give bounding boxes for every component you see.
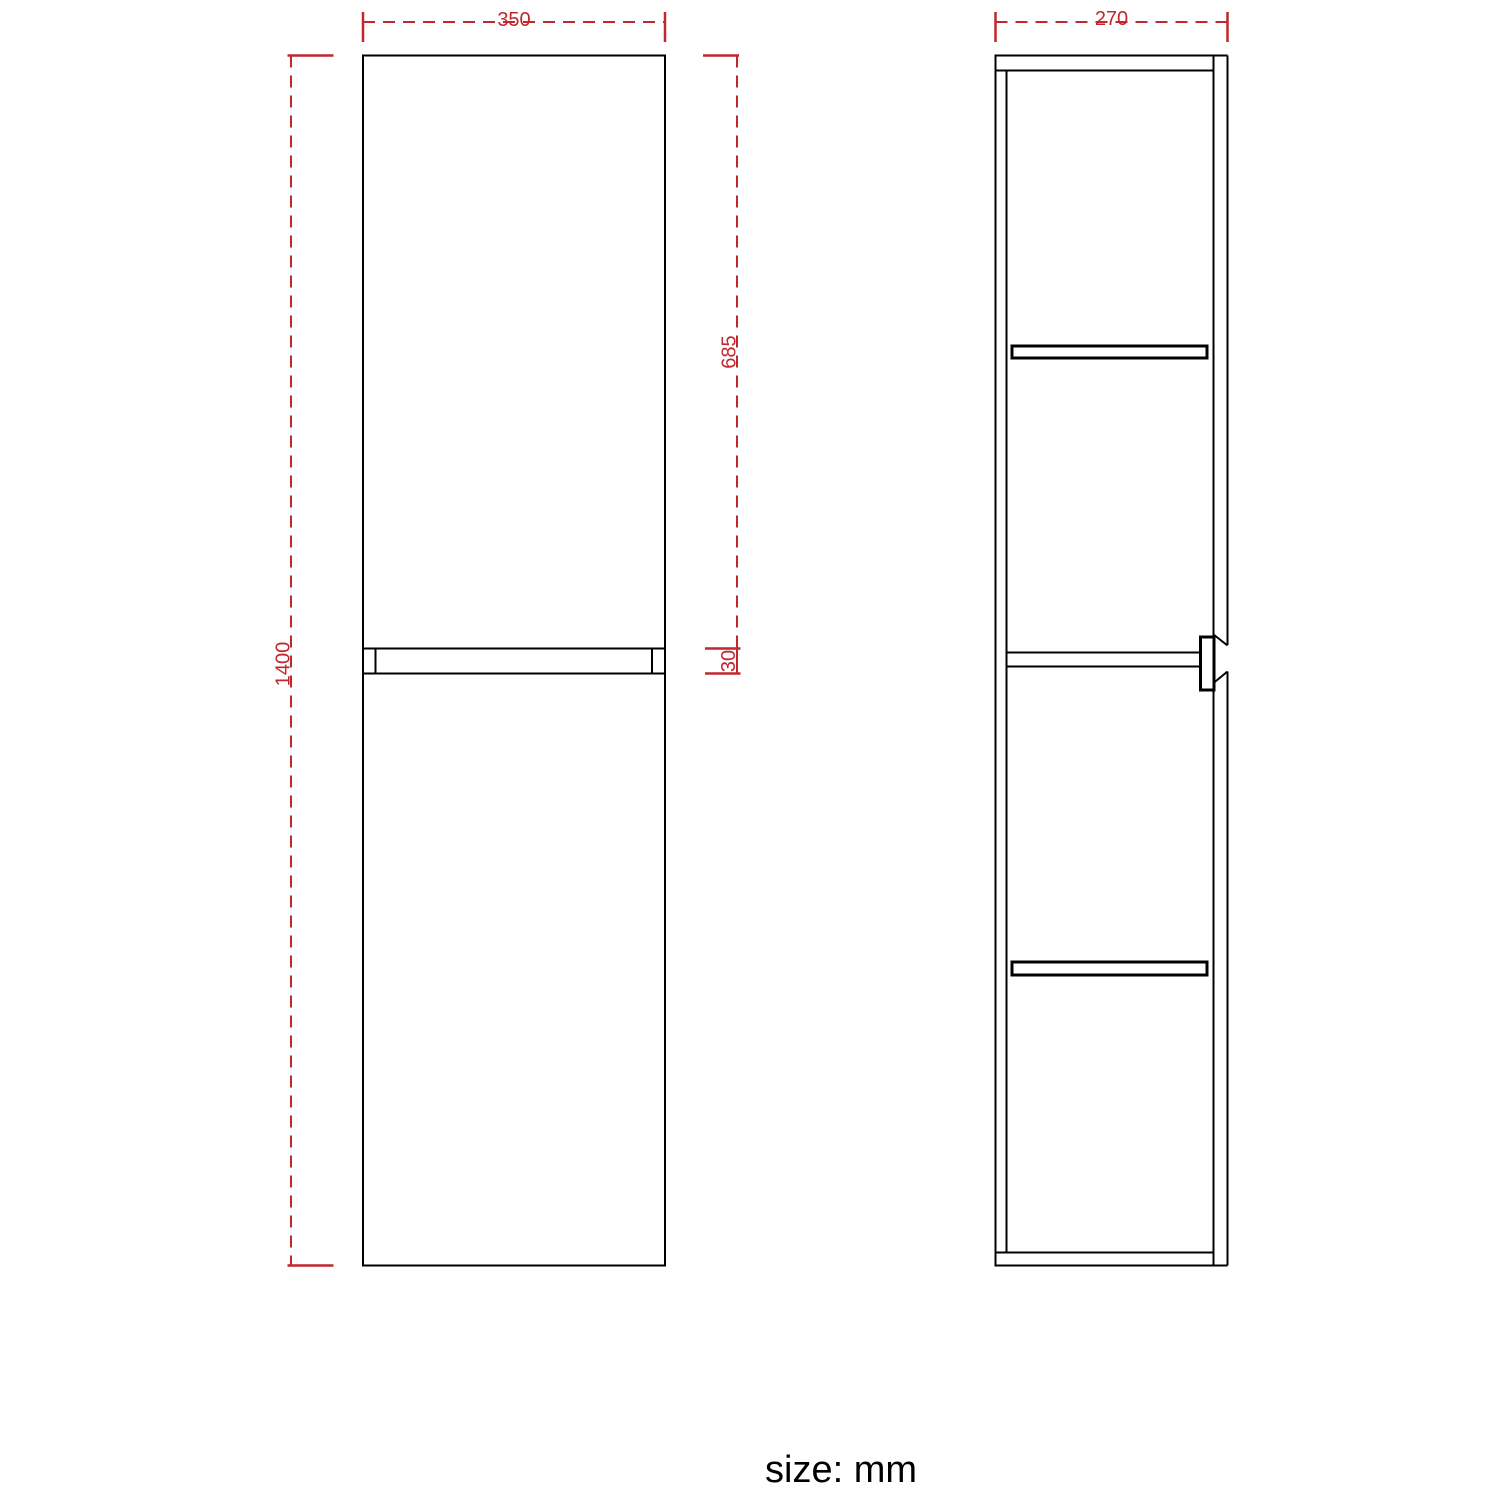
side-view-upper-door-chamfer: [1214, 635, 1228, 646]
door-gap-dim-label: 30: [718, 650, 740, 672]
front-view-cabinet-outline: [363, 56, 665, 1266]
dimension-lines: [288, 12, 1228, 1266]
side-view-lower-shelf: [1012, 962, 1207, 975]
side-view-lower-door-chamfer: [1214, 672, 1228, 684]
front-height-dim-label: 1400: [273, 642, 295, 687]
drawing-canvas: 350 1400 685 30 270 size: mm: [0, 0, 1500, 1500]
front-view: [363, 56, 665, 1266]
side-depth-dim-label: 270: [1095, 8, 1128, 30]
side-view: [996, 56, 1228, 1266]
side-view-carcass-outline: [996, 56, 1214, 1266]
front-width-dim-label: 350: [497, 9, 530, 31]
side-view-upper-shelf: [1012, 346, 1207, 358]
size-unit-caption: size: mm: [765, 1449, 917, 1491]
upper-door-height-dim-label: 685: [719, 335, 741, 368]
technical-drawing: 350 1400 685 30 270 size: mm: [0, 0, 1500, 1500]
side-view-handle-profile-block: [1201, 637, 1215, 690]
